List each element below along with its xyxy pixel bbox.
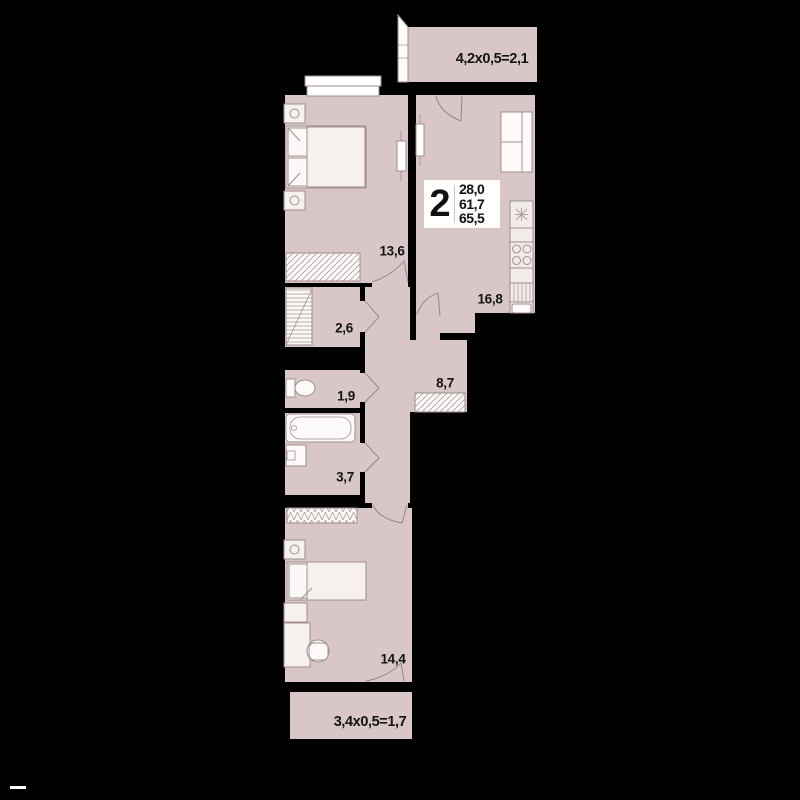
apartment-info-badge: 2 28,0 61,7 65,5 [424, 180, 500, 228]
apartment-area-value: 61,7 [459, 197, 484, 212]
desk [284, 623, 310, 667]
dresser [284, 603, 307, 622]
door-gap-bedroom [372, 283, 408, 288]
double-bed [286, 126, 366, 188]
nightstand [284, 104, 305, 123]
total-area-value: 65,5 [459, 211, 484, 226]
room-area-label-bathroom: 3,7 [336, 470, 354, 485]
window-bedroom [305, 76, 381, 86]
single-bed [287, 562, 366, 600]
dish-dryer [510, 283, 533, 313]
fridge [501, 112, 532, 172]
closet-hallway [415, 393, 465, 412]
loggia-bottom-dimension-label: 3,4x0,5=1,7 [334, 714, 407, 730]
closet-storage [286, 288, 312, 345]
floor-plan-drawing [0, 0, 800, 800]
wardrobe-bedroom [286, 253, 360, 281]
room-area-label-bedroom: 13,6 [379, 244, 404, 259]
door-gap-bedroom2 [372, 502, 408, 509]
radiator-bedroom [397, 141, 406, 171]
door-gap-bathroom [360, 443, 366, 472]
hallway-fixtures [415, 393, 465, 412]
nightstand [284, 191, 305, 210]
door-gap-storage [360, 301, 366, 332]
bathroom-sink [286, 445, 306, 466]
loggia-parapet [398, 15, 408, 82]
bathtub [286, 414, 355, 442]
door-gap-kitchen [416, 333, 440, 341]
wardrobe-bedroom2 [287, 508, 357, 523]
storage-fixtures [286, 288, 312, 345]
desk-chair [307, 640, 329, 662]
nightstand [284, 540, 305, 559]
loggia-top-dimension-label: 4,2x0,5=2,1 [456, 51, 529, 67]
living-area-value: 28,0 [459, 182, 484, 197]
room-area-label-bedroom2: 14,4 [380, 652, 405, 667]
room-area-label-kitchen-living: 16,8 [477, 292, 502, 307]
radiator-kitchen [416, 124, 424, 156]
floor-plan-canvas: 13,6 16,8 2,6 1,9 8,7 3,7 14,4 4,2x0,5=2… [0, 0, 800, 800]
toilet [286, 379, 315, 397]
room-area-label-storage: 2,6 [335, 321, 353, 336]
window-sill-bedroom [307, 86, 379, 96]
room-count: 2 [424, 185, 454, 223]
wc-fixtures [286, 379, 315, 397]
area-values: 28,0 61,7 65,5 [455, 182, 484, 226]
room-area-label-wc: 1,9 [337, 389, 355, 404]
door-gap-wc [360, 373, 366, 402]
room-area-label-hallway: 8,7 [436, 376, 454, 391]
corner-mark [10, 786, 26, 789]
